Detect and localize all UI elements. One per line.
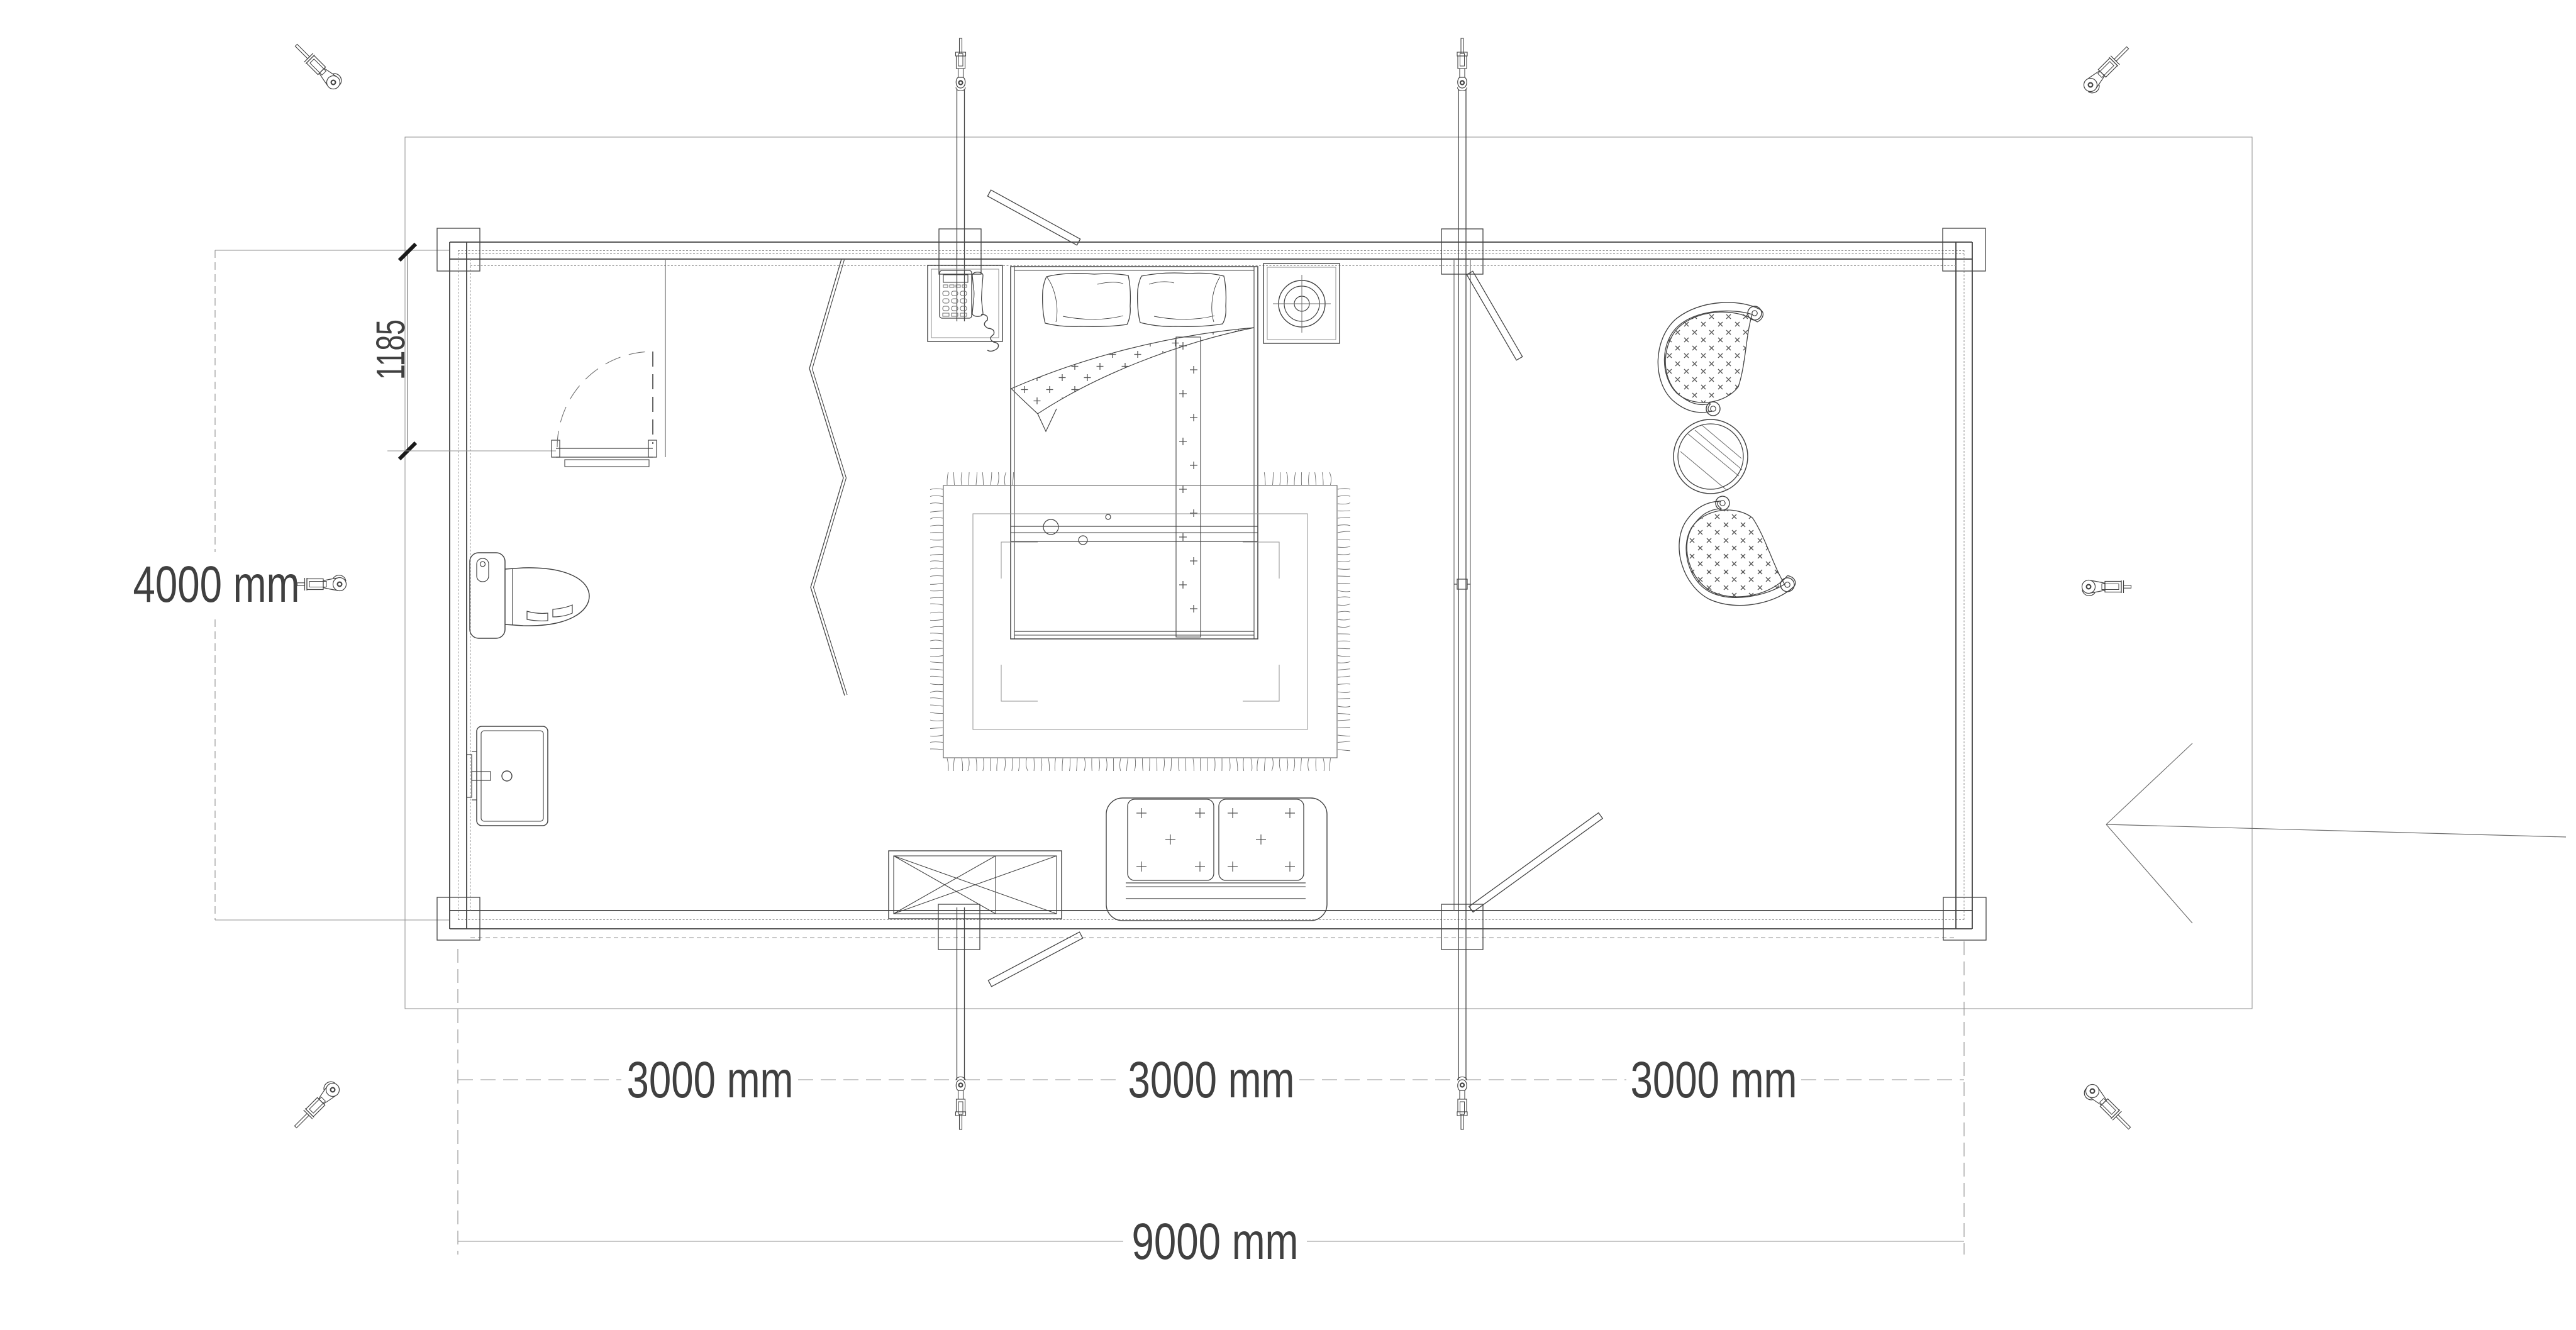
svg-text:9000 mm: 9000 mm	[1132, 1213, 1299, 1270]
svg-text:3000 mm: 3000 mm	[627, 1051, 794, 1109]
svg-text:3000 mm: 3000 mm	[1631, 1051, 1797, 1109]
svg-text:3000 mm: 3000 mm	[1128, 1051, 1295, 1109]
svg-text:1185: 1185	[368, 319, 413, 380]
svg-text:4000 mm: 4000 mm	[133, 556, 300, 613]
